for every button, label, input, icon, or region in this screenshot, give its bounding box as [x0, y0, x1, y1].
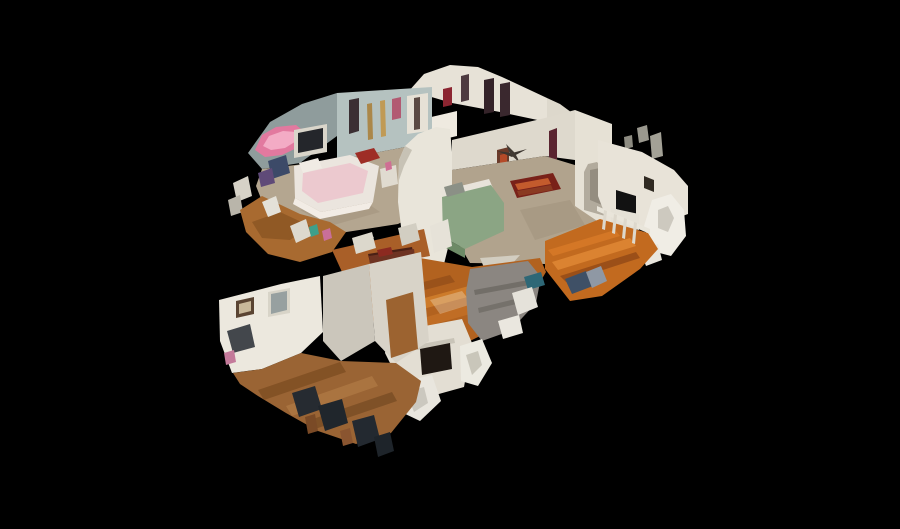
gable-window-2: [500, 82, 510, 117]
viewer-canvas[interactable]: [0, 0, 900, 529]
gable-art-red: [443, 87, 452, 107]
fragment-gray-2: [650, 132, 663, 159]
fragment-gray-3: [624, 135, 633, 149]
gable-door-dark: [461, 74, 469, 102]
gable-window-1: [484, 78, 494, 114]
bedroom1-gold-decor-2: [380, 100, 386, 137]
fragment-gray-1: [637, 125, 649, 143]
frontroom-window-glass: [271, 291, 287, 314]
bedroom1-gold-decor-1: [367, 103, 373, 140]
frontroom-wall-2: [323, 264, 375, 361]
frontroom-doorway: [386, 292, 418, 358]
bedroom1-door-dark: [349, 98, 359, 134]
bedroom1-art-pink: [392, 97, 401, 120]
dollhouse-model[interactable]: [0, 0, 900, 529]
bedroom1-wardrobe-gap: [414, 97, 420, 130]
